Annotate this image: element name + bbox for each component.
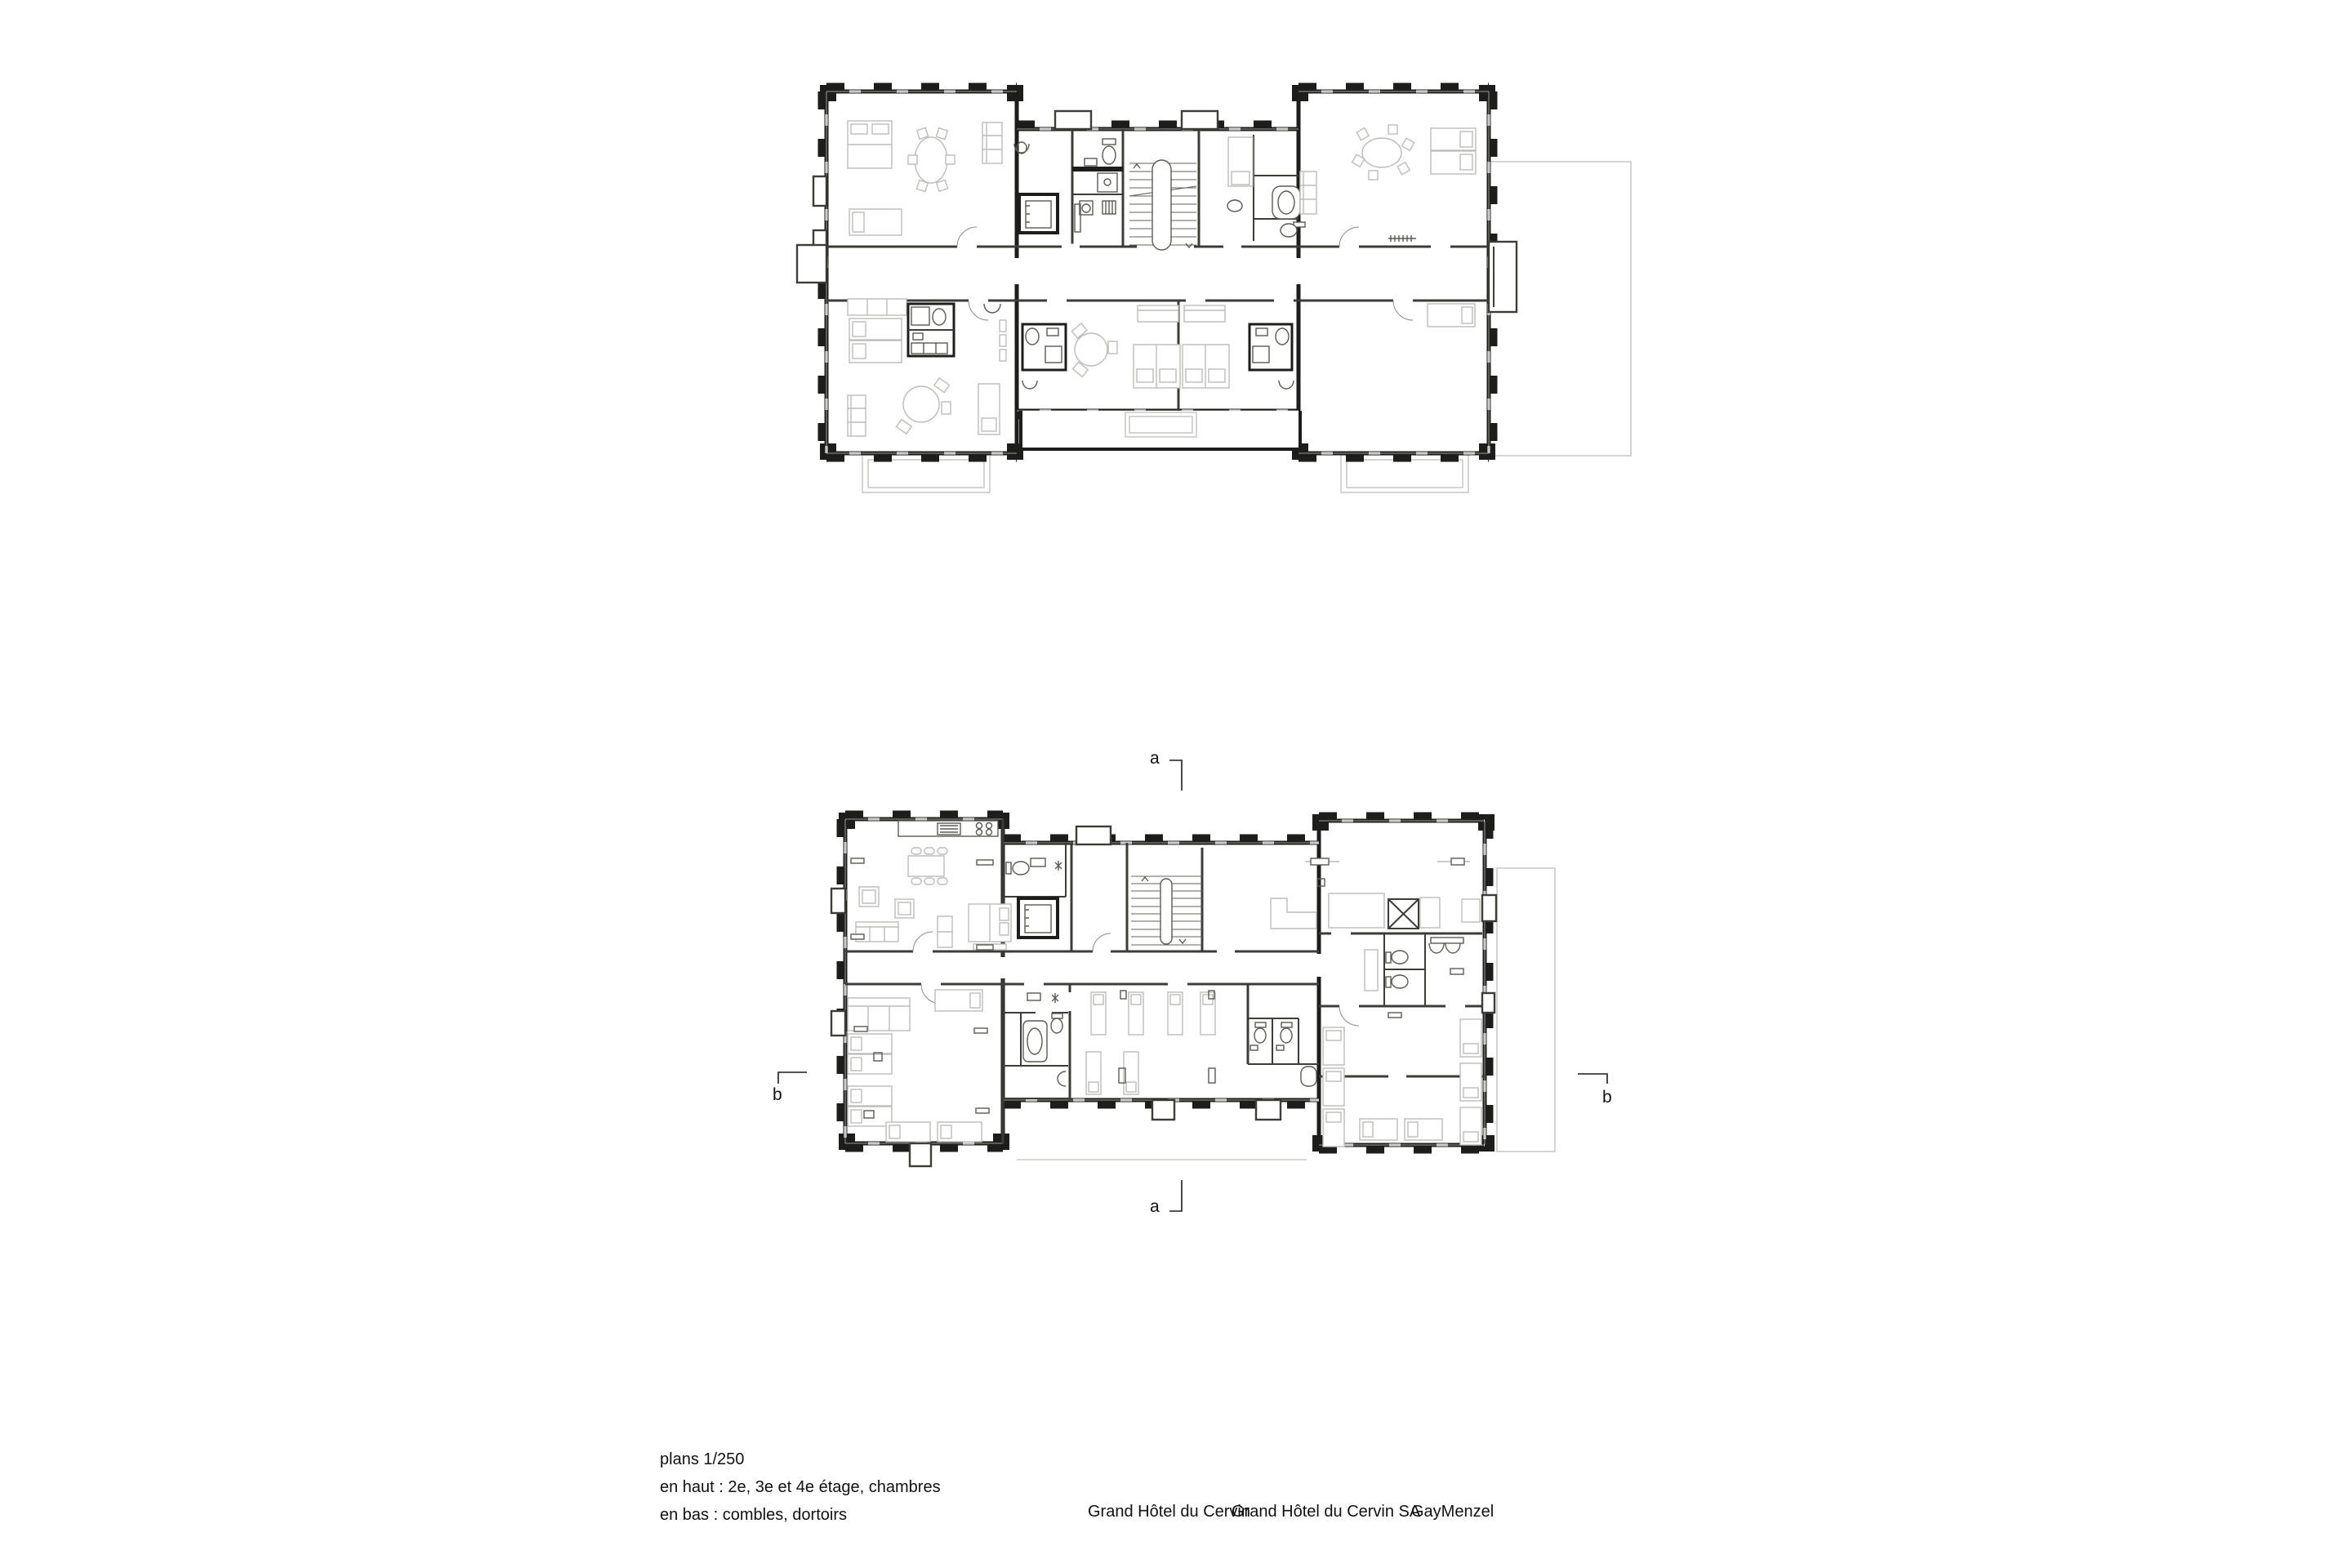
caption-scale: plans 1/250	[660, 1445, 941, 1473]
lower-plan-room-top-right	[1271, 858, 1480, 929]
floor-plan-drawing	[0, 0, 2352, 1568]
upper-plan-room-top-left	[848, 121, 1002, 235]
section-marker-b-left: b	[773, 1085, 782, 1105]
upper-plan-terrace	[1021, 411, 1300, 449]
section-marker-b-right: b	[1602, 1088, 1612, 1107]
lower-plan-dorm-right	[1323, 1013, 1481, 1147]
upper-plan-elevator	[1019, 194, 1058, 233]
upper-floor-plan	[797, 85, 1631, 492]
lower-plan-dorm-center	[1086, 991, 1215, 1094]
lower-plan-bathrooms-right	[1365, 938, 1463, 991]
footer-client-name: Grand Hôtel du Cervin SA	[1232, 1503, 1420, 1521]
footer-project-title: Grand Hôtel du Cervin	[1088, 1503, 1250, 1521]
section-marker-a-bottom: a	[1150, 1197, 1160, 1217]
section-marker-a-top: a	[1150, 749, 1160, 768]
caption-block: plans 1/250 en haut : 2e, 3e et 4e étage…	[660, 1445, 941, 1529]
lower-plan-elevator	[1018, 898, 1058, 938]
caption-upper-plan: en haut : 2e, 3e et 4e étage, chambres	[660, 1473, 941, 1501]
bathroom-pod	[1249, 324, 1292, 370]
lower-plan-staircase	[1131, 876, 1202, 945]
upper-plan-staircase	[1129, 160, 1196, 250]
upper-plan-room-top-right	[1300, 125, 1476, 327]
lower-plan-bathroom-top-left	[1006, 858, 1062, 875]
upper-plan-rooms-bottom-center	[1022, 305, 1294, 389]
lower-plan-bath-pod-center-left	[1023, 993, 1066, 1086]
lower-plan-kitchen-living	[851, 821, 1011, 950]
footer-architect-name: GayMenzel	[1411, 1503, 1494, 1521]
lower-floor-plan	[831, 813, 1555, 1166]
lower-plan-dorm-left	[848, 990, 989, 1142]
lower-plan-wc-center	[1250, 1022, 1316, 1086]
caption-lower-plan: en bas : combles, dortoirs	[660, 1501, 941, 1529]
bathroom-pod	[908, 304, 954, 356]
drawing-sheet: plans 1/250 en haut : 2e, 3e et 4e étage…	[0, 0, 2352, 1568]
bathroom-pod	[1022, 324, 1066, 370]
